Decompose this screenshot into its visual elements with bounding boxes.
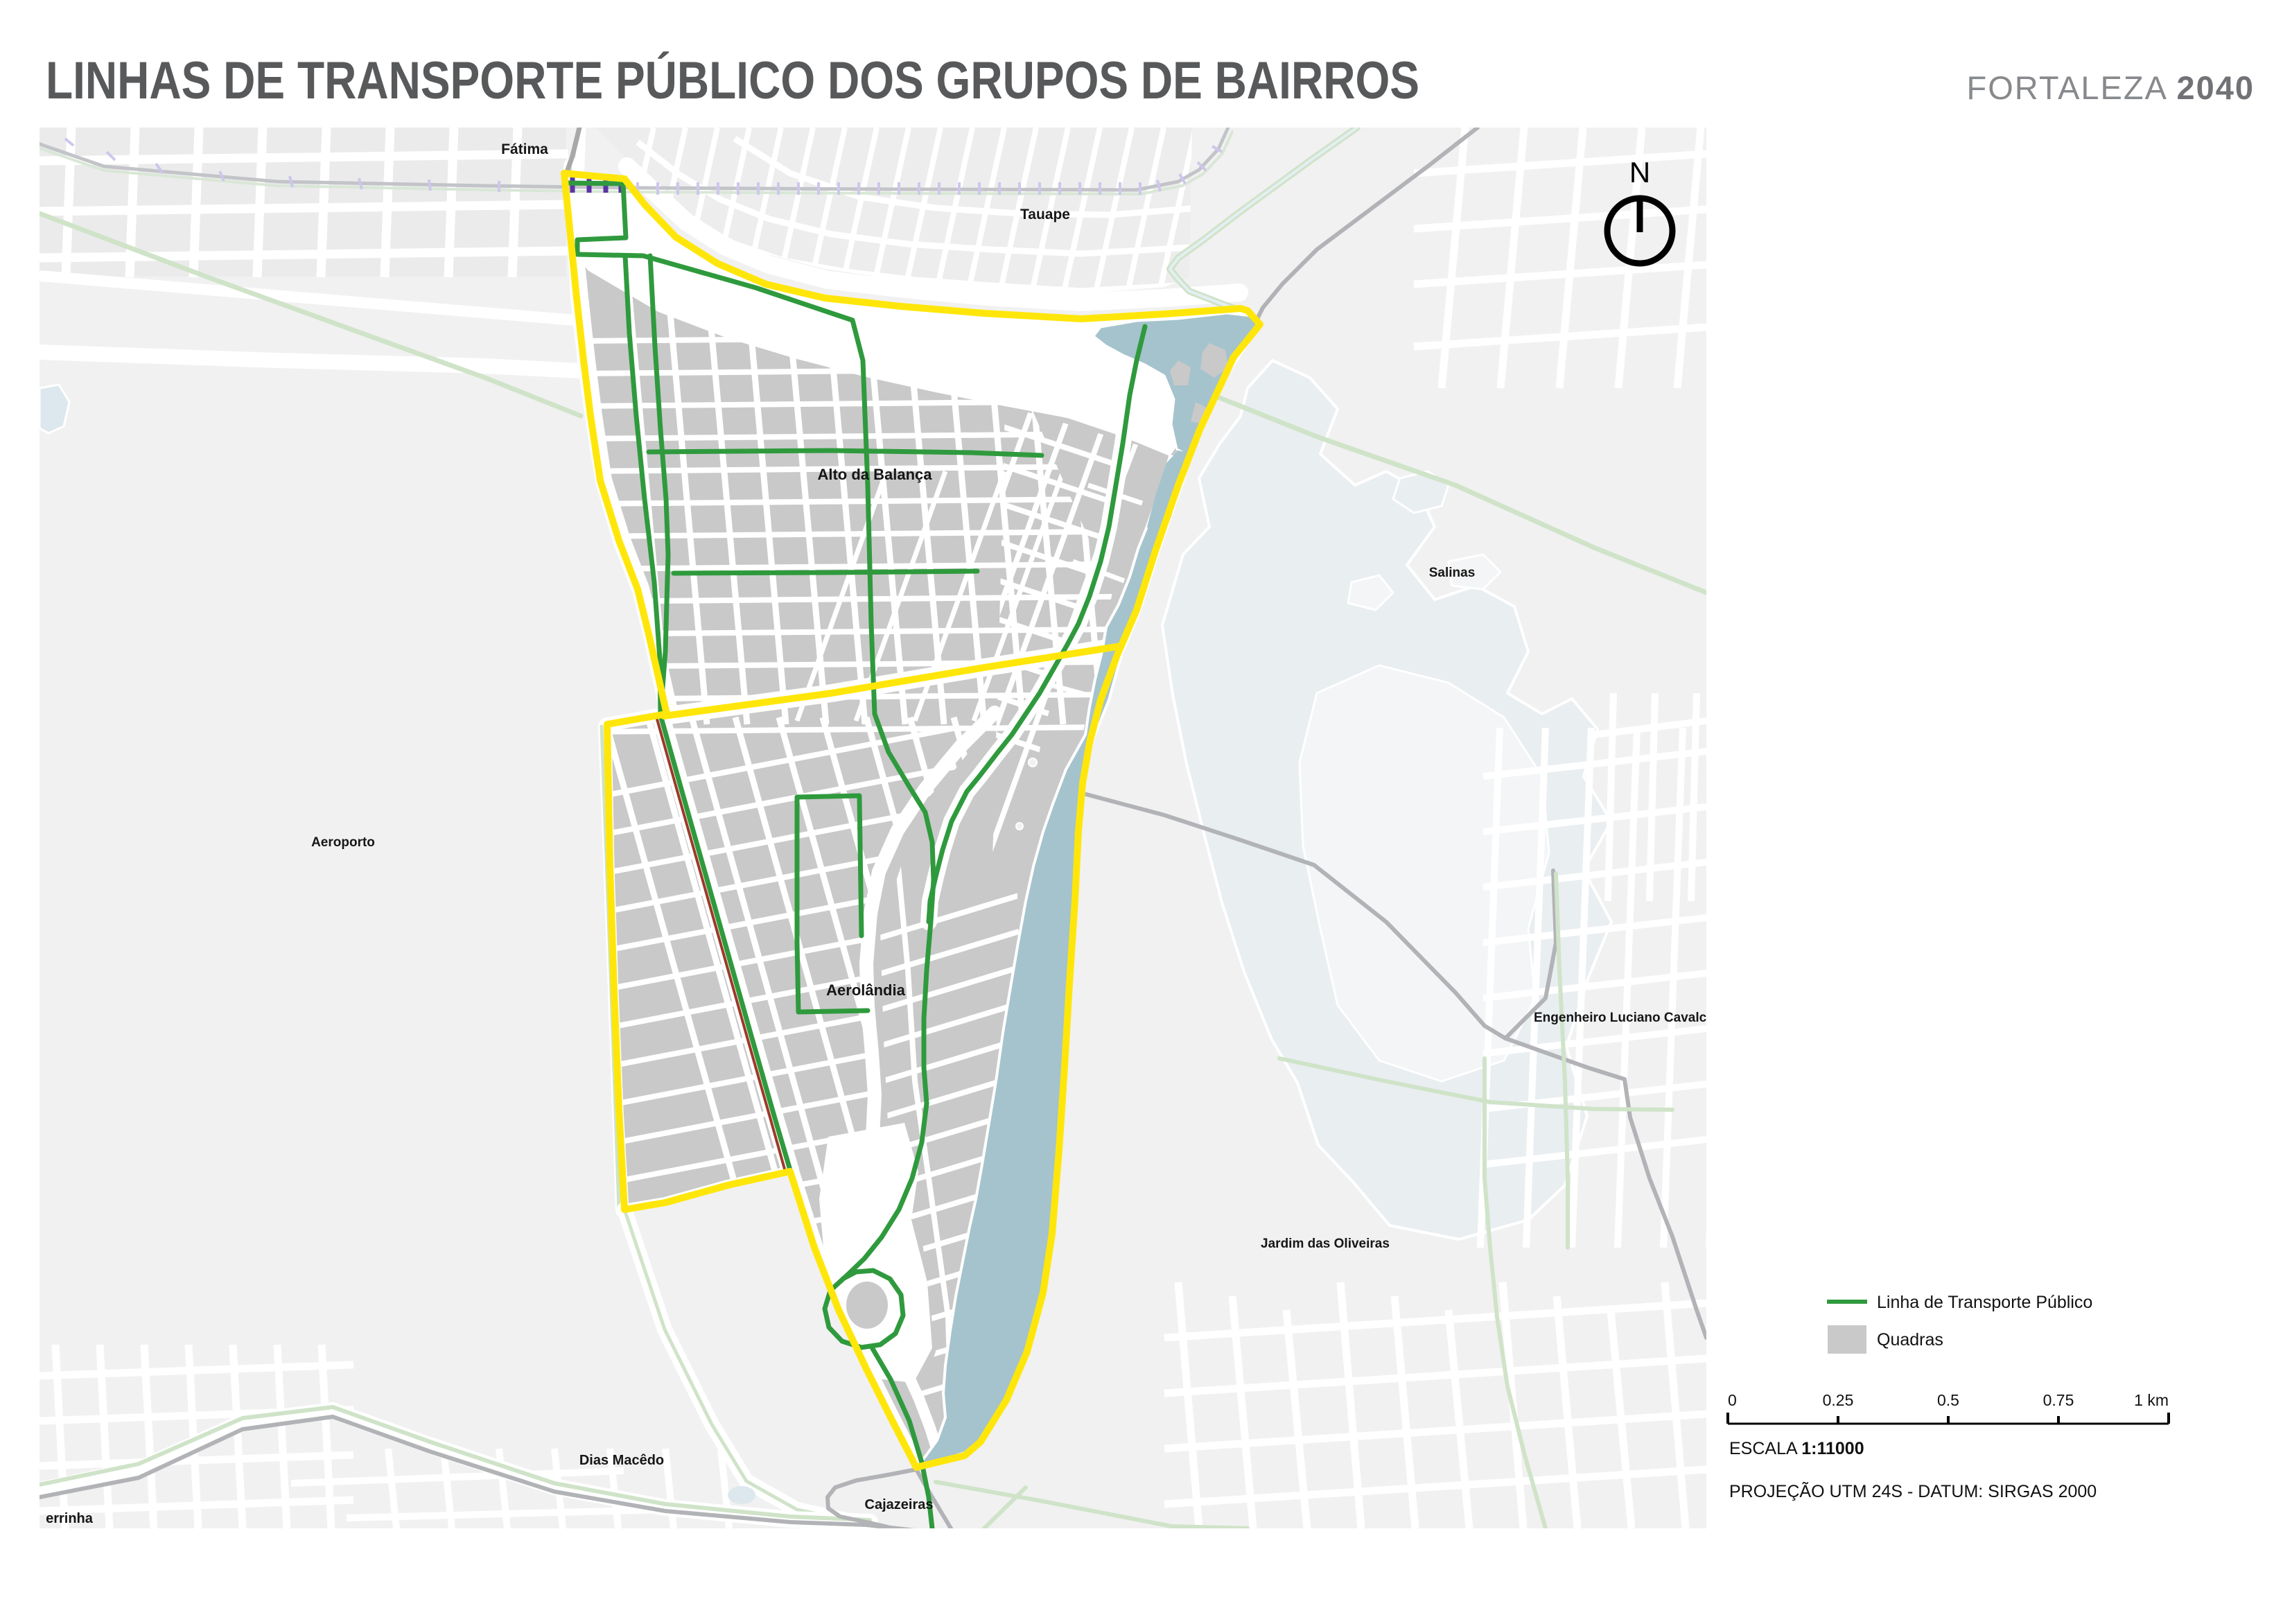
svg-text:Quadras: Quadras xyxy=(1877,1330,1943,1350)
svg-text:Engenheiro Luciano Cavalcante: Engenheiro Luciano Cavalcante xyxy=(1534,1011,1733,1025)
svg-text:0.75: 0.75 xyxy=(2043,1391,2074,1409)
svg-text:N: N xyxy=(1629,156,1650,189)
svg-text:LINHAS DE TRANSPORTE PÚBLICO D: LINHAS DE TRANSPORTE PÚBLICO DOS GRUPOS … xyxy=(46,51,1419,110)
svg-text:0.5: 0.5 xyxy=(1937,1391,1959,1409)
svg-text:FORTALEZA 2040: FORTALEZA 2040 xyxy=(1966,69,2255,106)
svg-text:1 km: 1 km xyxy=(2134,1391,2169,1409)
svg-text:Alto da Balança: Alto da Balança xyxy=(817,466,932,483)
svg-text:Salinas: Salinas xyxy=(1429,566,1476,580)
svg-text:Fátima: Fátima xyxy=(501,141,548,157)
svg-text:Aerolândia: Aerolândia xyxy=(826,981,905,999)
svg-text:ESCALA 1:11000: ESCALA 1:11000 xyxy=(1729,1439,1864,1458)
svg-text:Dias Macêdo: Dias Macêdo xyxy=(579,1453,664,1468)
svg-text:Tauape: Tauape xyxy=(1020,207,1070,222)
svg-text:Linha de Transporte Público: Linha de Transporte Público xyxy=(1877,1293,2092,1312)
svg-text:PROJEÇÃO UTM 24S - DATUM: SIRG: PROJEÇÃO UTM 24S - DATUM: SIRGAS 2000 xyxy=(1729,1481,2097,1501)
svg-text:0: 0 xyxy=(1728,1391,1737,1409)
svg-text:Aeroporto: Aeroporto xyxy=(311,835,375,850)
svg-text:errinha: errinha xyxy=(46,1511,94,1526)
svg-text:0.25: 0.25 xyxy=(1823,1391,1854,1409)
svg-text:Jardim das Oliveiras: Jardim das Oliveiras xyxy=(1261,1237,1390,1251)
svg-text:Cajazeiras: Cajazeiras xyxy=(865,1497,934,1512)
